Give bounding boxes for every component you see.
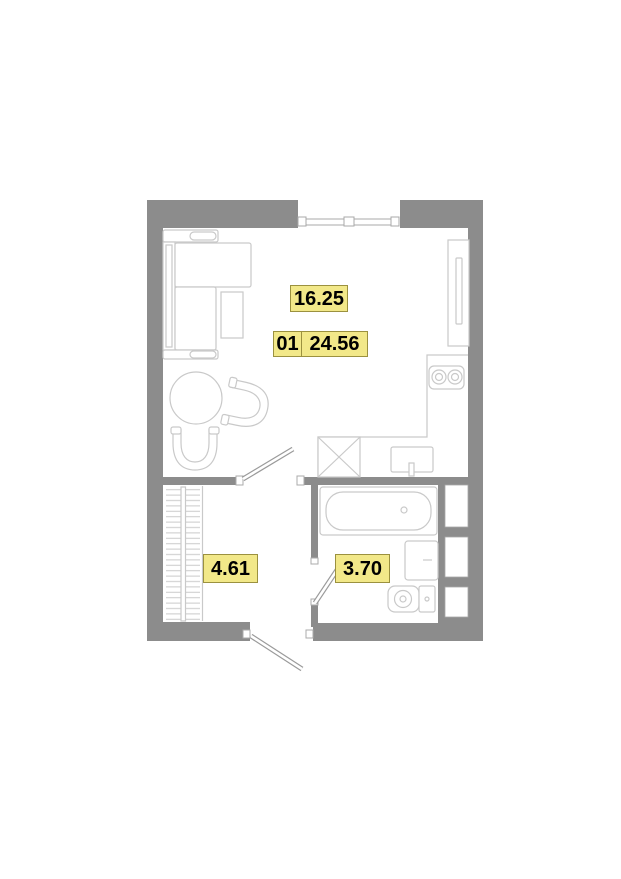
bathroom-area-value: 3.70 <box>343 559 382 579</box>
bathroom-fixtures <box>320 487 438 612</box>
kitchen <box>318 355 468 477</box>
closet-rail <box>181 487 186 621</box>
kitchen-sink-tap <box>409 463 414 476</box>
area-label-bathroom: 3.70 <box>335 554 390 583</box>
bathroom-cabinet <box>419 586 435 612</box>
sofa-seat-top <box>175 243 251 287</box>
sofa-pillow-top <box>190 232 216 240</box>
bathroom-door-jamb-top <box>311 558 318 564</box>
floor-plan-canvas: 16.25 01 24.56 4.61 3.70 <box>0 0 621 879</box>
wall-divider-hallway <box>147 477 242 485</box>
dining-table <box>170 372 222 424</box>
window-mullion-center <box>344 217 354 226</box>
window-mullion-left <box>298 217 306 226</box>
living-door-jamb-left <box>236 476 243 485</box>
chair-right <box>220 377 272 433</box>
area-label-living: 16.25 <box>290 285 348 312</box>
bathroom-sink-base <box>388 586 419 612</box>
window-mullion-right <box>391 217 399 226</box>
entry-door-jamb-left <box>243 630 250 638</box>
wall-bathroom-door-stub <box>311 604 318 627</box>
niche-3 <box>445 587 468 617</box>
wall-bottom-bathroom <box>313 623 483 641</box>
washing-machine <box>405 541 438 580</box>
chair-bottom <box>171 427 219 470</box>
bathtub <box>320 487 437 535</box>
unit-label: 01 24.56 <box>273 331 368 357</box>
niche-1 <box>445 485 468 527</box>
wall-bottom-left <box>147 622 250 641</box>
living-area-value: 16.25 <box>294 289 344 309</box>
window <box>298 217 399 226</box>
hallway-closet <box>165 486 203 621</box>
entry-door-jamb-right <box>306 630 313 638</box>
sofa-side-table <box>221 292 243 338</box>
area-label-hallway: 4.61 <box>203 554 258 583</box>
floor-plan-svg <box>0 0 621 879</box>
sofa-pillow-bottom <box>190 351 216 358</box>
sofa-seat-left <box>175 287 216 350</box>
wall-top-left <box>147 200 298 228</box>
total-area-cell: 24.56 <box>302 332 367 356</box>
living-door-jamb-right <box>297 476 304 485</box>
wall-bathroom-left <box>311 485 318 563</box>
sofa <box>163 230 251 359</box>
wall-left <box>147 228 163 622</box>
wall-top-right <box>400 200 483 228</box>
unit-number-cell: 01 <box>274 332 302 356</box>
niche-2 <box>445 537 468 577</box>
hallway-area-value: 4.61 <box>211 559 250 579</box>
wardrobe <box>448 240 469 346</box>
wall-right <box>468 228 483 641</box>
wardrobe-door <box>456 258 462 324</box>
sofa-back-inner <box>166 245 172 347</box>
shaft-niches <box>445 485 468 617</box>
